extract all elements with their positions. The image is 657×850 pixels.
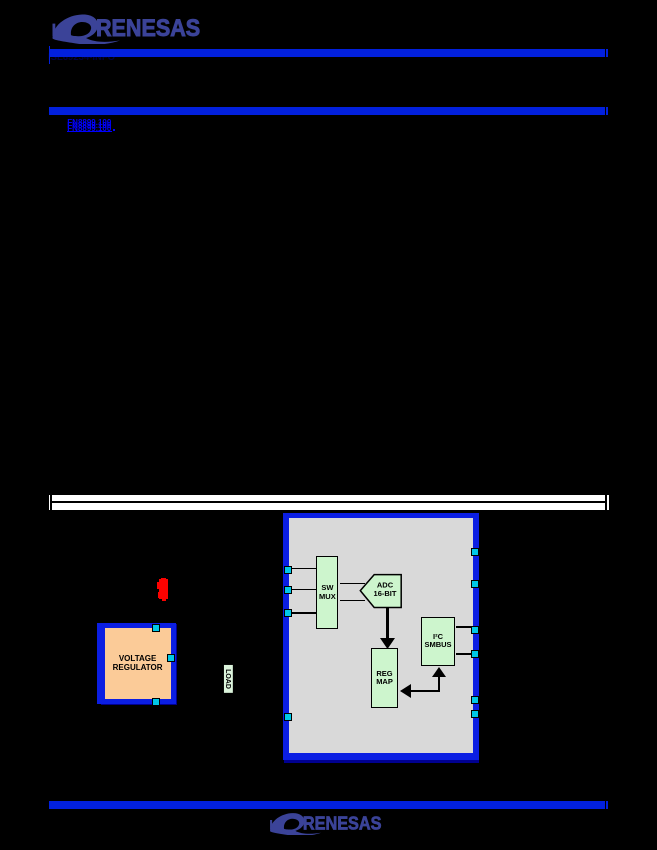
svg-text:16-BIT: 16-BIT <box>374 589 397 598</box>
svg-text:RENESAS: RENESAS <box>96 14 200 42</box>
svg-text:LOAD: LOAD <box>223 669 230 689</box>
svg-text:RENESAS: RENESAS <box>302 812 381 833</box>
